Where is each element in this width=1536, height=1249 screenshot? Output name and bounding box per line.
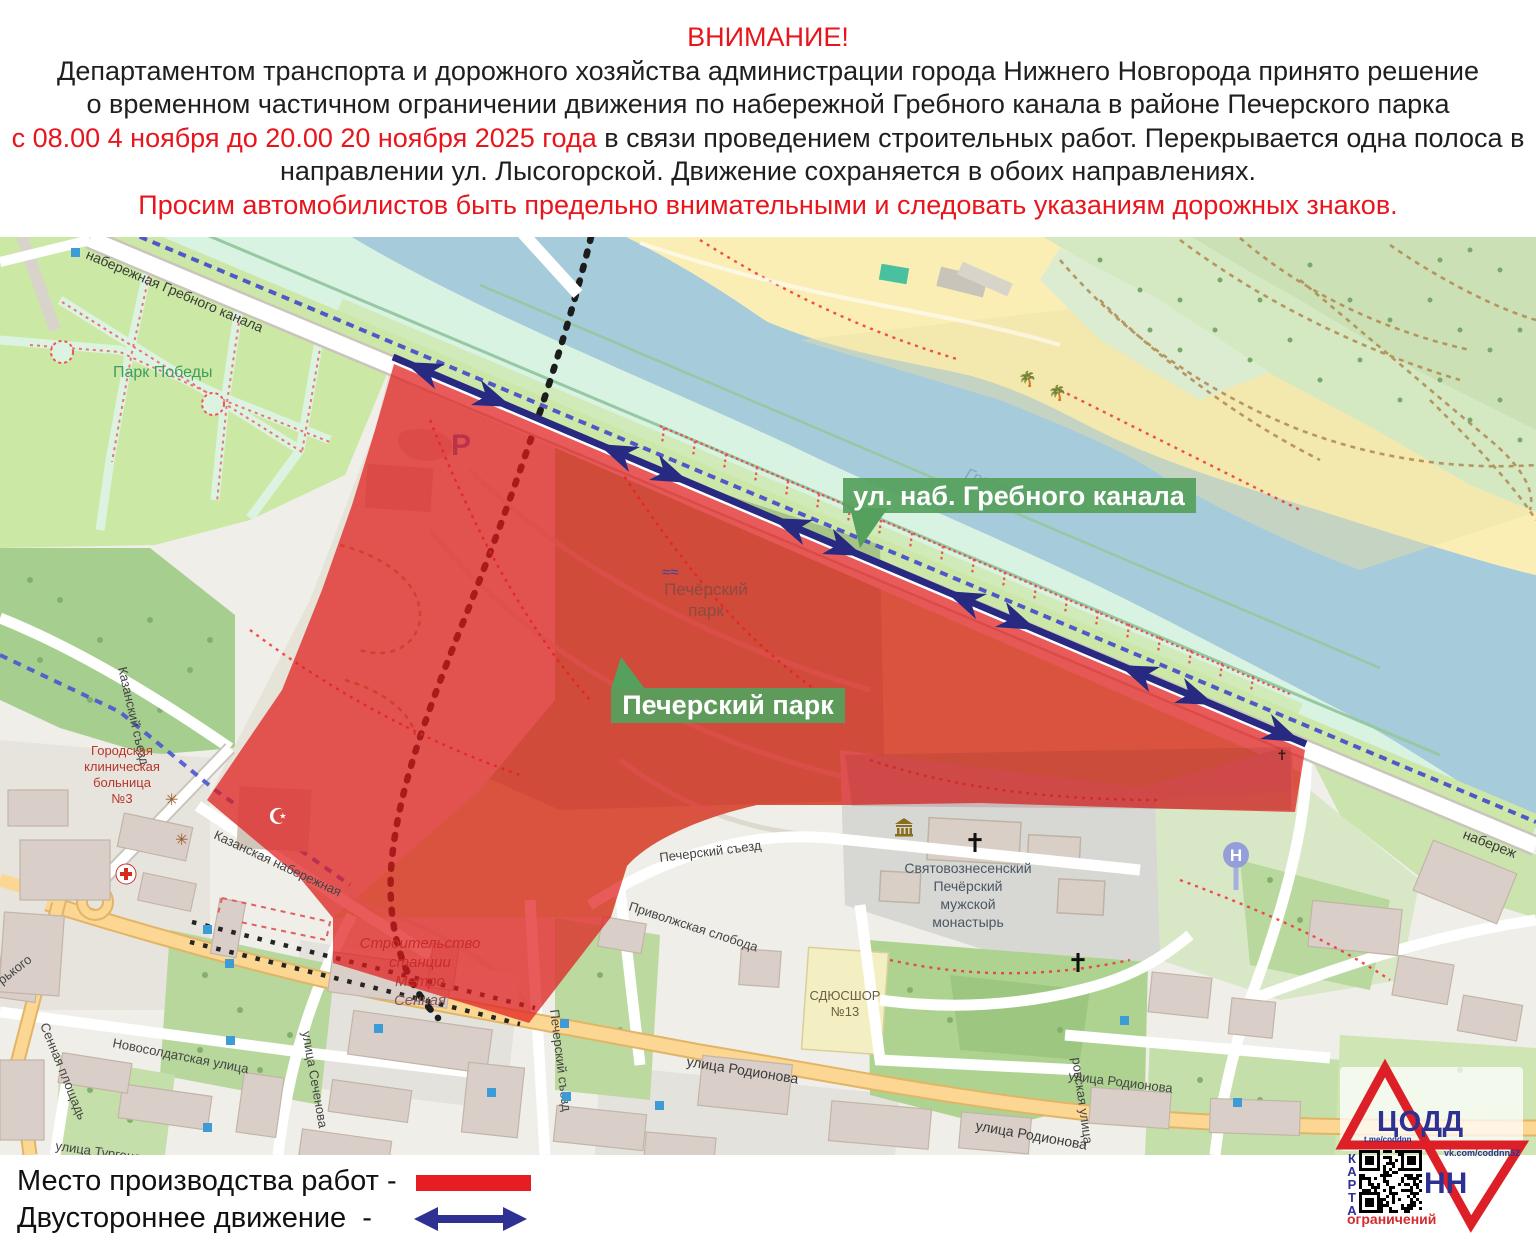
svg-text:Печёрский: Печёрский xyxy=(664,580,748,599)
svg-text:№13: №13 xyxy=(831,1004,859,1019)
svg-text:парк: парк xyxy=(688,601,724,620)
svg-text:НН: НН xyxy=(1424,1167,1467,1200)
svg-text:больница: больница xyxy=(93,775,152,790)
svg-text:🌴: 🌴 xyxy=(1018,370,1037,388)
svg-text:🌴: 🌴 xyxy=(1048,384,1067,402)
svg-text:✳: ✳ xyxy=(175,832,188,849)
svg-text:≈≈: ≈≈ xyxy=(662,564,678,581)
svg-text:vk.com/coddnn52: vk.com/coddnn52 xyxy=(1444,1148,1520,1158)
svg-text:✳: ✳ xyxy=(165,792,178,809)
svg-text:Парк Победы: Парк Победы xyxy=(113,364,213,381)
svg-text:мужской: мужской xyxy=(940,896,995,912)
svg-text:ЦОДД: ЦОДД xyxy=(1377,1106,1464,1138)
svg-text:ограничений: ограничений xyxy=(1347,1211,1436,1227)
svg-text:Святовознесенский: Святовознесенский xyxy=(904,860,1031,876)
svg-text:✝: ✝ xyxy=(1276,747,1288,763)
svg-text:t.me/coddnn: t.me/coddnn xyxy=(1364,1135,1412,1144)
svg-text:Печёрский: Печёрский xyxy=(933,878,1002,894)
svg-text:✝: ✝ xyxy=(1067,948,1089,978)
svg-text:Печерский парк: Печерский парк xyxy=(622,690,834,720)
svg-text:ул. наб. Гребного канала: ул. наб. Гребного канала xyxy=(853,481,1186,511)
svg-text:✝: ✝ xyxy=(964,828,986,858)
svg-text:СДЮСШОР: СДЮСШОР xyxy=(810,988,881,1003)
svg-text:Городская: Городская xyxy=(91,743,153,758)
svg-text:монастырь: монастырь xyxy=(932,914,1003,930)
svg-text:H: H xyxy=(1230,846,1242,865)
svg-text:клиническая: клиническая xyxy=(84,759,160,774)
svg-text:☪: ☪ xyxy=(268,804,288,829)
svg-text:№3: №3 xyxy=(111,791,132,806)
